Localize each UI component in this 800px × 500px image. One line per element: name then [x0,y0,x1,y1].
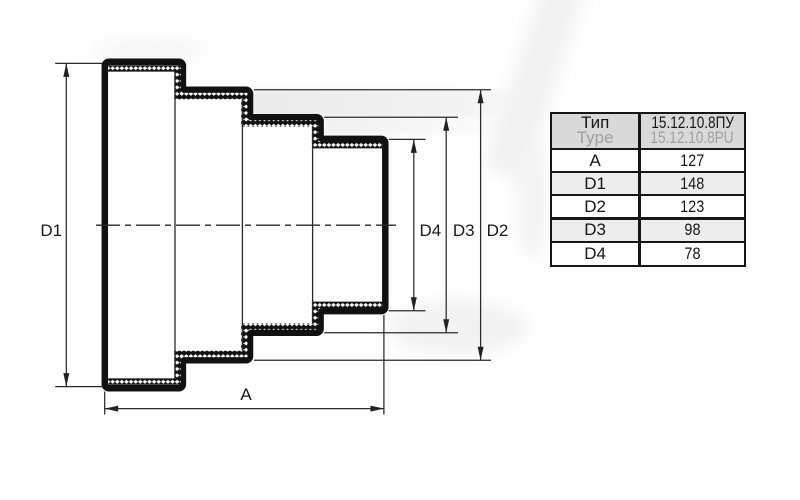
svg-text:D3: D3 [453,221,475,240]
svg-text:D4: D4 [420,221,442,240]
svg-text:D1: D1 [40,221,62,240]
svg-text:D2: D2 [487,221,509,240]
svg-text:A: A [240,385,252,404]
